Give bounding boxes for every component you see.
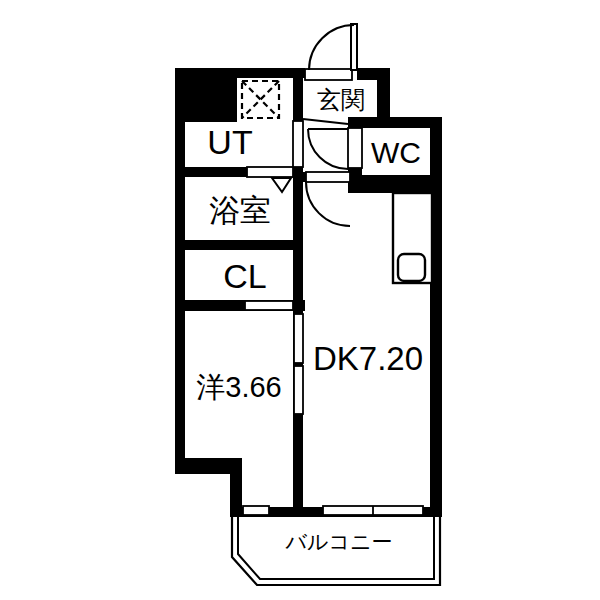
western-room-label: 洋3.66 (196, 371, 281, 403)
wall-below-wc (362, 175, 442, 193)
western-room-extension-area (242, 455, 294, 507)
entrance-threshold (305, 69, 352, 80)
ut-doorway (293, 121, 303, 167)
closet-opening (245, 301, 293, 310)
wall-wc-top (348, 117, 442, 128)
window-western-room (243, 506, 269, 515)
wc-label: WC (371, 136, 421, 169)
dk-doorway (306, 172, 350, 182)
closet-label: CL (223, 257, 266, 295)
bathroom-label: 浴室 (209, 193, 271, 228)
wc-doorway (348, 128, 362, 168)
wall-left (175, 68, 185, 472)
sliding-door-panel-upper (294, 314, 303, 363)
genkan-label: 玄関 (317, 86, 365, 113)
wall-genkan-right (377, 68, 390, 118)
dining-kitchen-label: DK7.20 (313, 340, 423, 377)
bathroom-doorway (247, 167, 293, 177)
sliding-door-panel-lower (294, 366, 303, 414)
hallway-area (303, 118, 348, 173)
ut-label: UT (207, 123, 252, 161)
entrance-door-leaf (351, 24, 357, 70)
wall-bathroom-bottom (175, 240, 303, 250)
floor-plan-drawing: 玄関 UT WC 浴室 CL 洋3.66 DK7.20 バルコニー (0, 0, 600, 600)
floor-plan: 玄関 UT WC 浴室 CL 洋3.66 DK7.20 バルコニー (0, 0, 600, 600)
kitchen-sink (398, 254, 425, 281)
balcony-label: バルコニー (285, 530, 393, 553)
wall-genkan-left (293, 77, 303, 121)
